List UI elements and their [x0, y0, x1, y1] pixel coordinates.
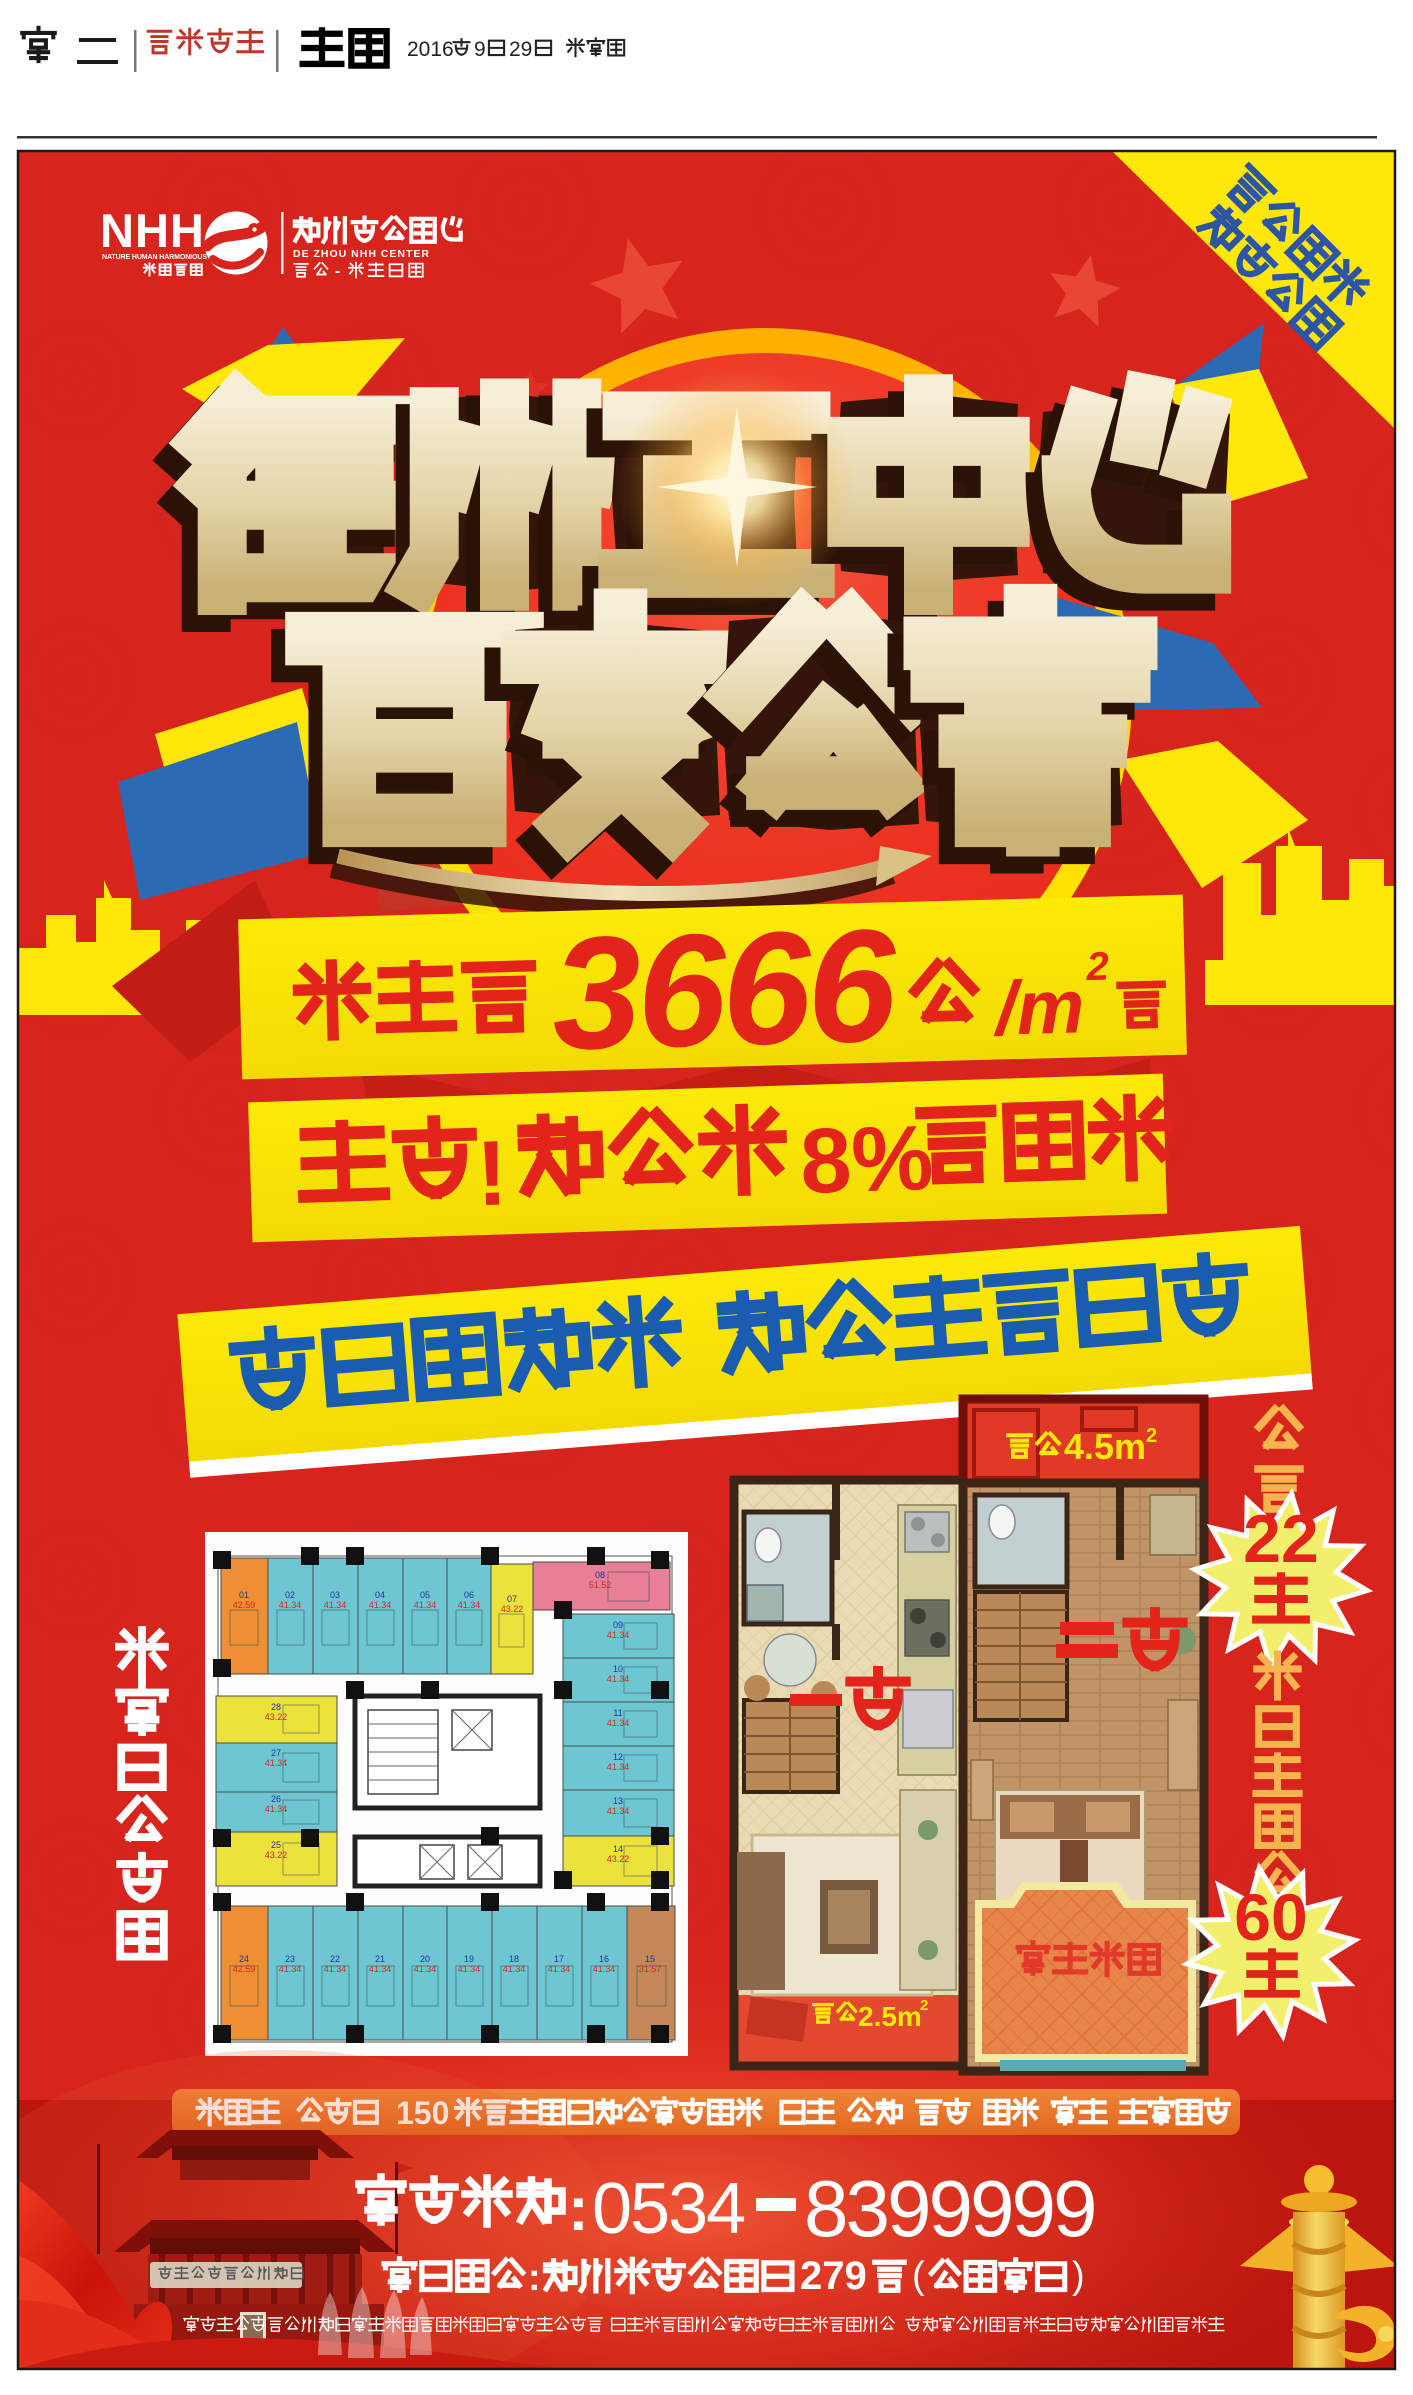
svg-text:-: - [335, 263, 340, 280]
svg-text:41.34: 41.34 [369, 1600, 392, 1610]
svg-text:29: 29 [509, 38, 532, 61]
svg-text:41.34: 41.34 [279, 1600, 302, 1610]
svg-text:(: ( [912, 2255, 925, 2297]
svg-text:51.52: 51.52 [589, 1580, 612, 1590]
svg-text:43.22: 43.22 [501, 1604, 524, 1614]
svg-text:02: 02 [285, 1590, 295, 1600]
svg-text:41.34: 41.34 [369, 1964, 392, 1974]
svg-text:05: 05 [420, 1590, 430, 1600]
svg-text:26: 26 [271, 1794, 281, 1804]
svg-text:60: 60 [1234, 1880, 1307, 1954]
svg-text:41.34: 41.34 [607, 1718, 630, 1728]
svg-text:10: 10 [613, 1664, 623, 1674]
svg-text:28: 28 [271, 1702, 281, 1712]
svg-text:8399999: 8399999 [804, 2164, 1094, 2253]
svg-text:): ) [1072, 2255, 1085, 2297]
svg-text:NHH: NHH [100, 204, 205, 257]
svg-text::: : [528, 2257, 541, 2299]
svg-text:42.59: 42.59 [233, 1964, 256, 1974]
svg-text:06: 06 [464, 1590, 474, 1600]
svg-text:43.22: 43.22 [265, 1850, 288, 1860]
svg-text:41.34: 41.34 [324, 1964, 347, 1974]
svg-text:41.34: 41.34 [503, 1964, 526, 1974]
svg-text:25: 25 [271, 1840, 281, 1850]
svg-text:9: 9 [474, 38, 486, 61]
svg-text:24: 24 [239, 1954, 249, 1964]
svg-text:4.5m: 4.5m [1064, 1426, 1146, 1467]
svg-text:2: 2 [1146, 1425, 1157, 1447]
svg-text:43.22: 43.22 [607, 1854, 630, 1864]
svg-text:2016: 2016 [407, 38, 454, 61]
svg-text:2: 2 [1085, 945, 1109, 990]
svg-text:41.34: 41.34 [607, 1806, 630, 1816]
svg-text::: : [568, 2175, 589, 2244]
svg-text:42.59: 42.59 [233, 1600, 256, 1610]
svg-text:/m: /m [992, 964, 1086, 1051]
svg-text:41.34: 41.34 [548, 1964, 571, 1974]
svg-text:41.34: 41.34 [414, 1600, 437, 1610]
svg-text:11: 11 [613, 1708, 622, 1718]
svg-text:41.34: 41.34 [607, 1674, 630, 1684]
svg-text:41.34: 41.34 [324, 1600, 347, 1610]
svg-text:17: 17 [554, 1954, 564, 1964]
svg-text:22: 22 [1243, 1501, 1319, 1577]
svg-text:14: 14 [613, 1844, 623, 1854]
svg-text:DE ZHOU NHH CENTER: DE ZHOU NHH CENTER [293, 248, 430, 260]
svg-text:08: 08 [595, 1570, 605, 1580]
svg-text:3666: 3666 [550, 895, 900, 1083]
svg-text:31.57: 31.57 [639, 1964, 662, 1974]
svg-text:19: 19 [464, 1954, 474, 1964]
svg-text:01: 01 [239, 1590, 249, 1600]
svg-text:04: 04 [375, 1590, 385, 1600]
svg-text:41.34: 41.34 [265, 1804, 288, 1814]
svg-text:09: 09 [613, 1620, 623, 1630]
svg-text:20: 20 [420, 1954, 430, 1964]
svg-text:21: 21 [375, 1954, 385, 1964]
svg-text:2: 2 [920, 1997, 928, 2014]
svg-text:22: 22 [330, 1954, 340, 1964]
svg-text:41.34: 41.34 [607, 1630, 630, 1640]
svg-text:13: 13 [613, 1796, 623, 1806]
svg-text:15: 15 [645, 1954, 655, 1964]
svg-text:03: 03 [330, 1590, 340, 1600]
svg-text:12: 12 [613, 1752, 623, 1762]
svg-text:2.5m: 2.5m [858, 2001, 922, 2032]
svg-text:41.34: 41.34 [458, 1964, 481, 1974]
svg-text:41.34: 41.34 [458, 1600, 481, 1610]
svg-text:279: 279 [800, 2254, 867, 2298]
svg-text:23: 23 [285, 1954, 295, 1964]
svg-text:NATURE HUMAN HARMONIOUS: NATURE HUMAN HARMONIOUS [102, 254, 207, 261]
svg-text:41.34: 41.34 [279, 1964, 302, 1974]
svg-text:!: ! [475, 1122, 509, 1225]
svg-text:41.34: 41.34 [593, 1964, 616, 1974]
svg-text:41.34: 41.34 [414, 1964, 437, 1974]
svg-text:41.34: 41.34 [607, 1762, 630, 1772]
svg-text:0534: 0534 [592, 2169, 744, 2249]
svg-text:43.22: 43.22 [265, 1712, 288, 1722]
svg-text:18: 18 [509, 1954, 519, 1964]
svg-text:41.34: 41.34 [265, 1758, 288, 1768]
svg-text:27: 27 [271, 1748, 281, 1758]
svg-text:07: 07 [507, 1594, 517, 1604]
svg-text:8%: 8% [799, 1107, 935, 1213]
svg-text:16: 16 [599, 1954, 609, 1964]
